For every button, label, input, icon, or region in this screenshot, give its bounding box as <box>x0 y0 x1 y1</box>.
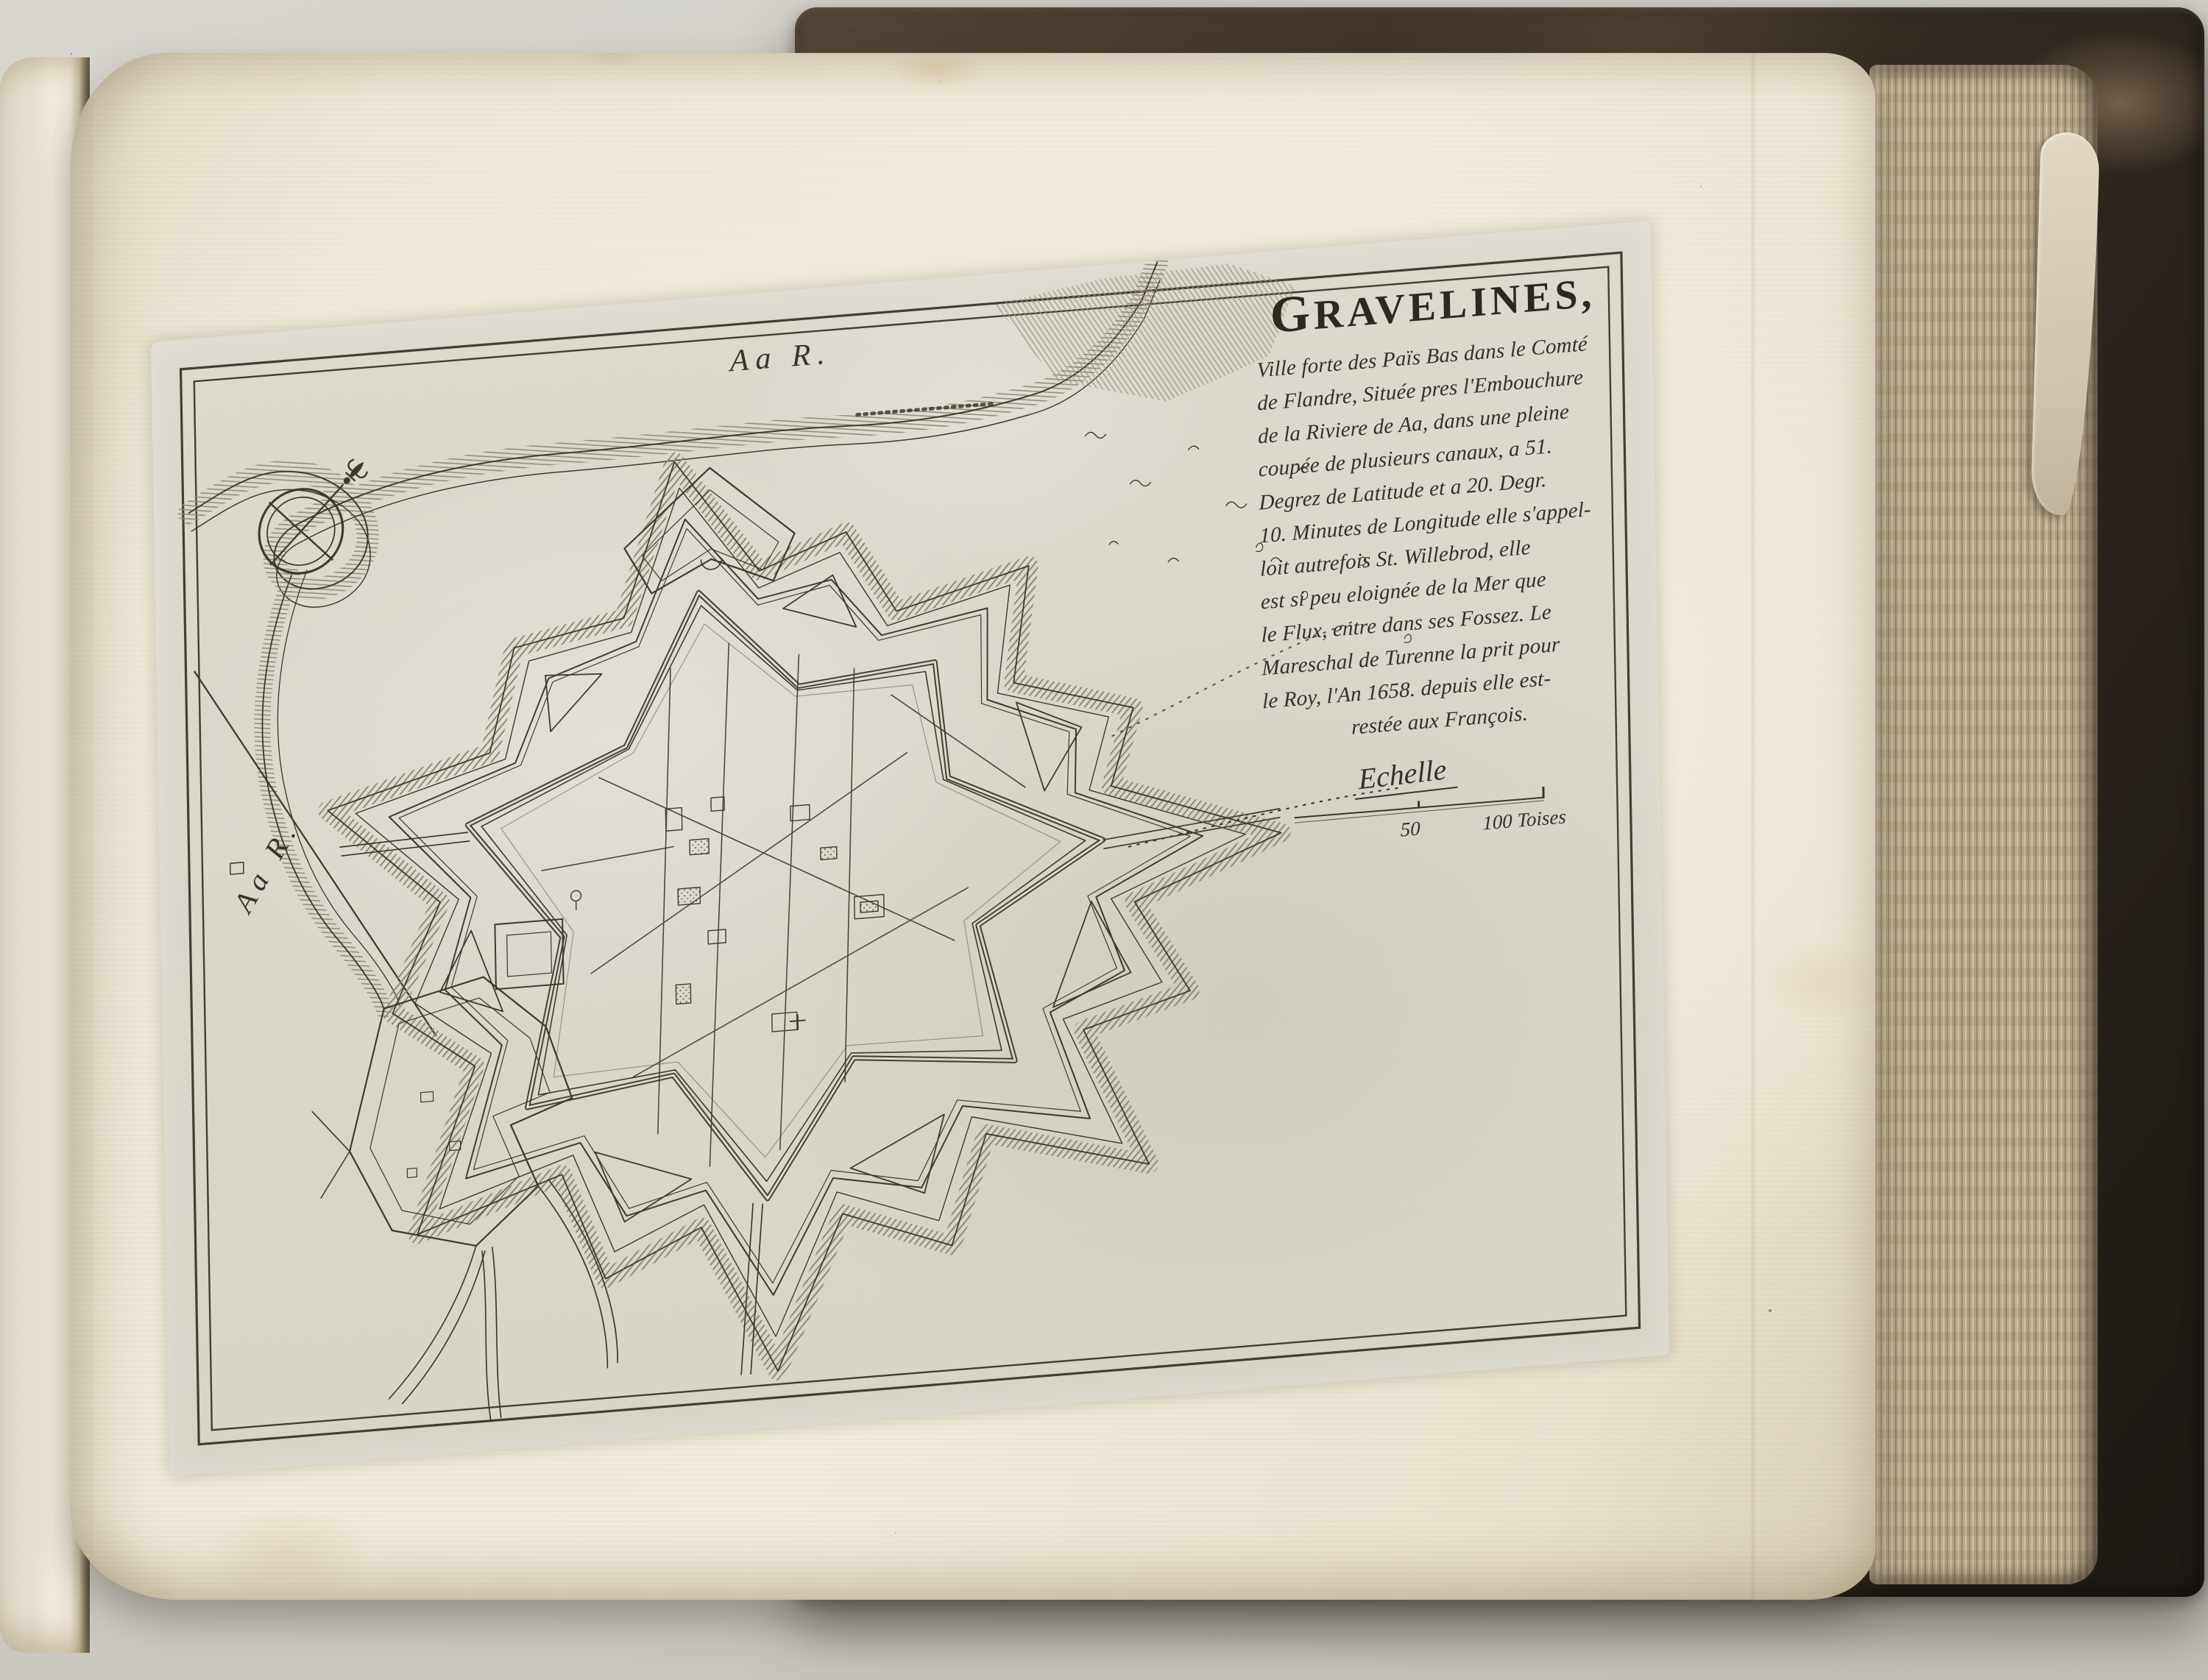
torn-page-fragment <box>2031 132 2100 516</box>
town-streets <box>538 620 1031 1180</box>
tree-symbol <box>570 890 581 910</box>
map-description: Ville forte des Païs Bas dans le Comté d… <box>1256 326 1616 752</box>
atlas-page: GRAVELINES, Ville forte des Païs Bas dan… <box>71 53 1875 1600</box>
engraved-map-plate: GRAVELINES, Ville forte des Païs Bas dan… <box>151 221 1669 1476</box>
photographed-atlas-scene: GRAVELINES, Ville forte des Païs Bas dan… <box>0 0 2208 1680</box>
scale-cartouche: Echelle 50 100 Toises <box>1289 740 1607 891</box>
town-buildings <box>493 784 886 1055</box>
gates-bridges <box>340 767 1289 1406</box>
scale-tick-end <box>1542 787 1544 798</box>
title-cartouche: GRAVELINES, Ville forte des Païs Bas dan… <box>1256 260 1617 752</box>
scale-tick-mid <box>1418 801 1420 808</box>
paper-specks <box>71 53 72 54</box>
scale-mid-value: 50 <box>1401 817 1420 841</box>
page-block-fore-edge <box>1869 65 2098 1584</box>
scale-end-value: 100 Toises <box>1482 805 1566 834</box>
